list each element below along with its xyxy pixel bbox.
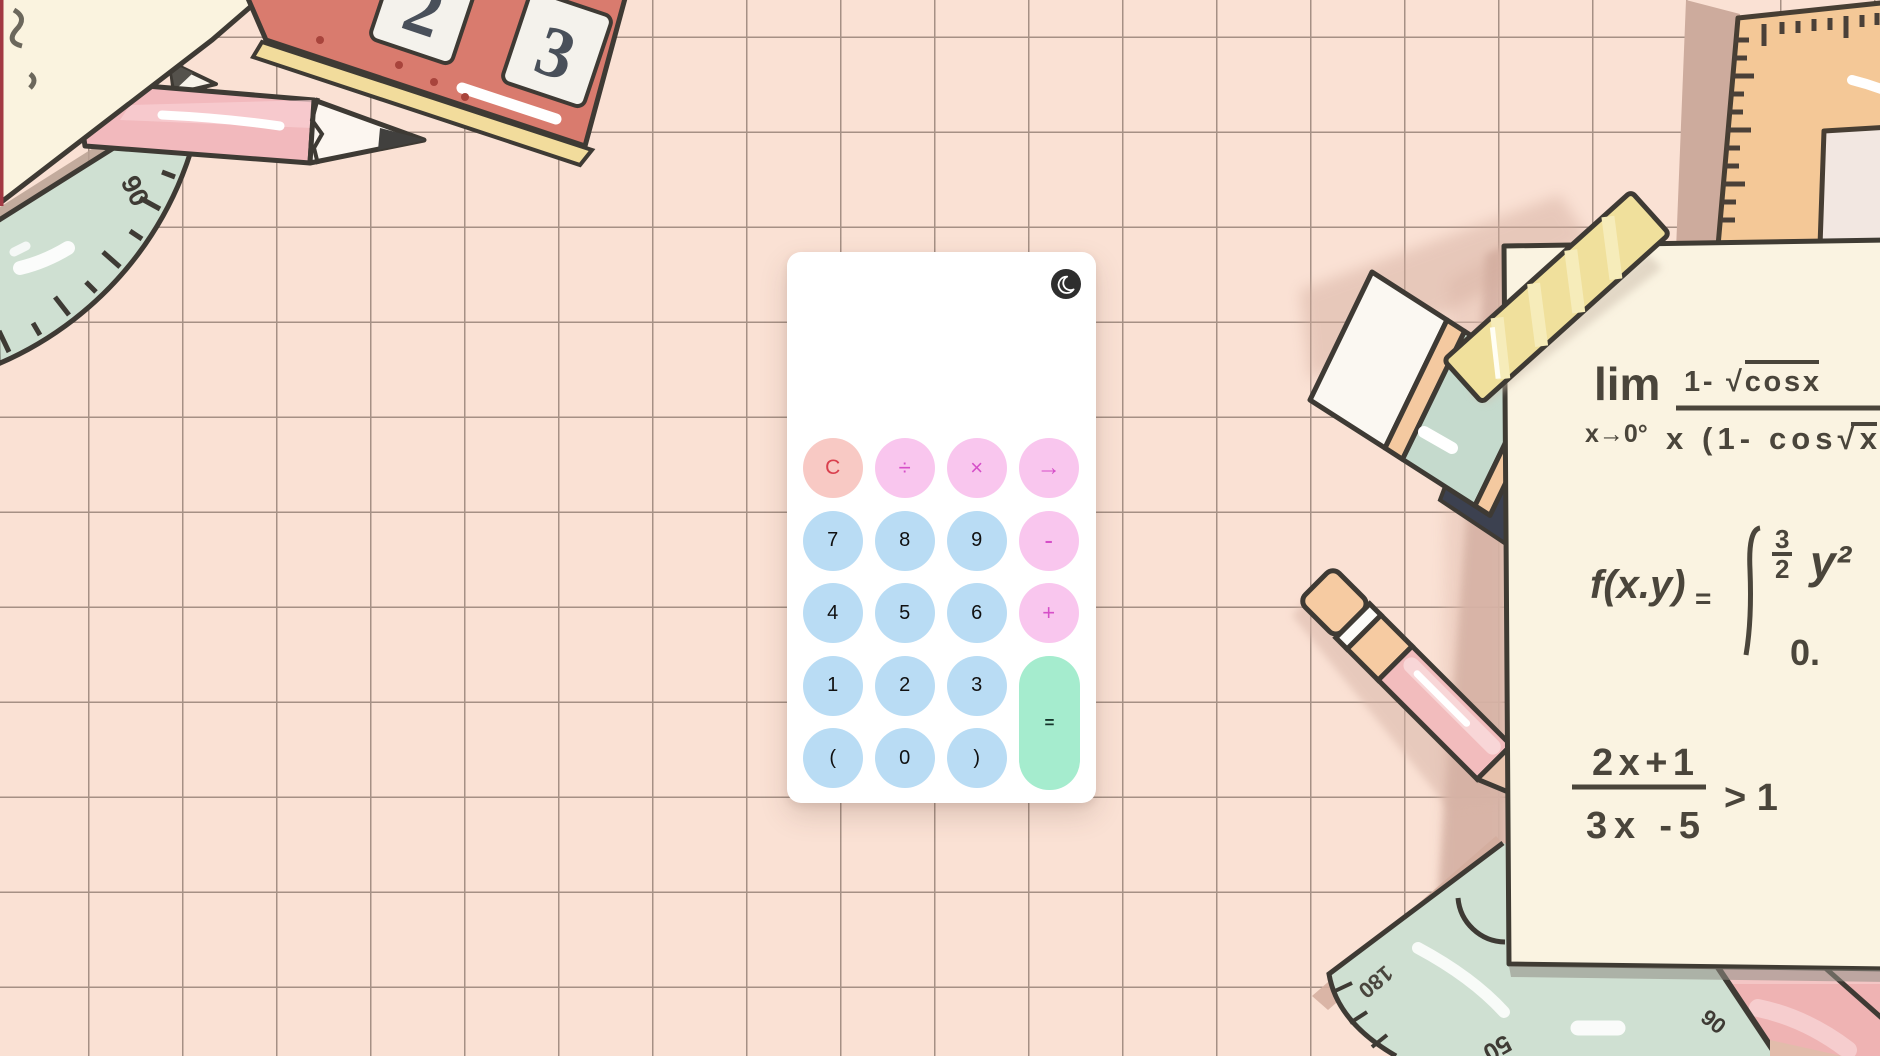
svg-text:lim: lim bbox=[1594, 358, 1660, 410]
svg-text:> 1: > 1 bbox=[1724, 777, 1778, 819]
svg-text:3x -5: 3x -5 bbox=[1586, 805, 1700, 847]
svg-text:=: = bbox=[1695, 583, 1711, 614]
svg-text:y²: y² bbox=[1808, 536, 1853, 588]
svg-text:x→0°: x→0° bbox=[1585, 420, 1648, 448]
svg-text:2: 2 bbox=[1775, 554, 1789, 584]
svg-text:0.: 0. bbox=[1790, 632, 1820, 673]
svg-text:f(x.y): f(x.y) bbox=[1590, 563, 1686, 607]
svg-text:3: 3 bbox=[1775, 524, 1789, 554]
svg-text:1- √cosx: 1- √cosx bbox=[1684, 366, 1819, 398]
